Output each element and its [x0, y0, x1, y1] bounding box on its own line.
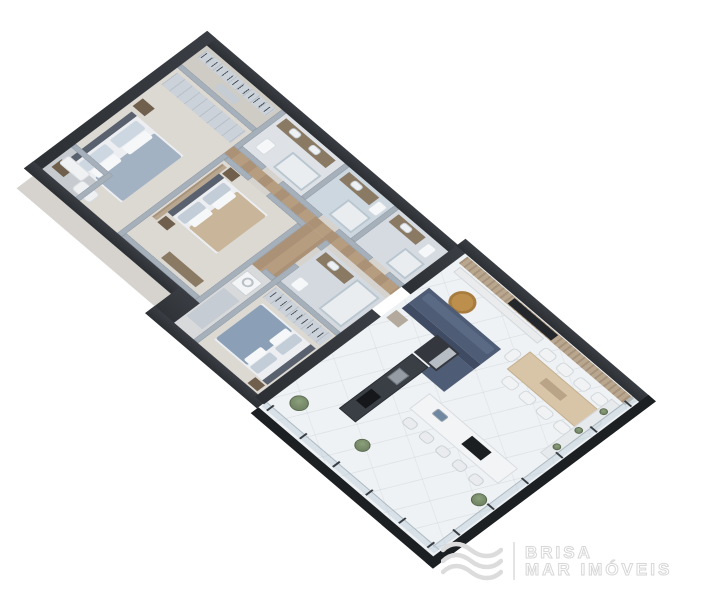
waves-icon: [441, 540, 503, 582]
brand-name: BRISA MAR IMÓVEIS: [525, 544, 672, 579]
floor-plan: [0, 25, 650, 566]
brand-watermark: BRISA MAR IMÓVEIS: [441, 540, 672, 582]
brand-line-2: MAR IMÓVEIS: [525, 561, 672, 578]
render-canvas: { "meta": { "canvas": {"width": 725, "he…: [0, 0, 725, 600]
brand-line-1: BRISA: [525, 544, 672, 561]
logo-divider: [513, 542, 515, 580]
